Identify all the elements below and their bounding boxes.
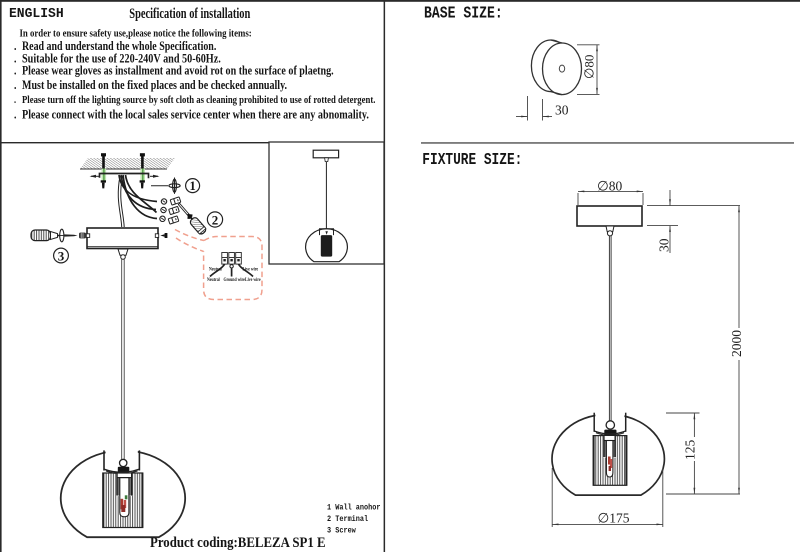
svg-text:.: .: [14, 108, 17, 122]
svg-text:3 Screw: 3 Screw: [327, 527, 356, 536]
svg-text:2000: 2000: [729, 330, 744, 357]
svg-text:Live wire: Live wire: [243, 266, 259, 272]
svg-text:In order to ensure safety use,: In order to ensure safety use,please not…: [20, 28, 252, 40]
svg-text:Product coding:BELEZA SP1 E: Product coding:BELEZA SP1 E: [150, 535, 326, 551]
svg-text:Specification of installation: Specification of installation: [129, 4, 250, 21]
svg-text:ENGLISH: ENGLISH: [9, 6, 64, 22]
svg-text:.: .: [14, 79, 17, 93]
svg-text:30: 30: [657, 238, 672, 252]
svg-text:∅175: ∅175: [598, 511, 630, 526]
svg-text:.: .: [14, 94, 16, 106]
svg-text:Neutral: Neutral: [209, 266, 222, 272]
svg-text:Must be installed on the fixed: Must be installed on the fixed places an…: [22, 78, 287, 93]
svg-text:30: 30: [555, 103, 569, 118]
svg-text:Please turn off the lighting s: Please turn off the lighting source by s…: [22, 94, 376, 106]
svg-text:1 Wall anohor: 1 Wall anohor: [327, 504, 381, 513]
svg-text:Live wire: Live wire: [245, 277, 261, 283]
svg-text:Please wear gloves as installm: Please wear gloves as installment and av…: [22, 63, 334, 78]
svg-text:∅80: ∅80: [582, 55, 597, 79]
svg-text:1: 1: [189, 179, 195, 193]
svg-text:Ground wire: Ground wire: [224, 277, 245, 283]
svg-text:Neutral: Neutral: [207, 277, 220, 283]
svg-text:3: 3: [58, 248, 65, 263]
svg-text:.: .: [14, 64, 17, 78]
svg-text:Please connect with the local: Please connect with the local sales serv…: [22, 107, 369, 121]
svg-text:2 Terminal: 2 Terminal: [327, 515, 368, 524]
svg-text:BASE SIZE:: BASE SIZE:: [424, 3, 503, 23]
svg-text:FIXTURE SIZE:: FIXTURE SIZE:: [422, 149, 522, 169]
svg-text:2: 2: [212, 212, 219, 227]
svg-text:125: 125: [683, 440, 698, 461]
